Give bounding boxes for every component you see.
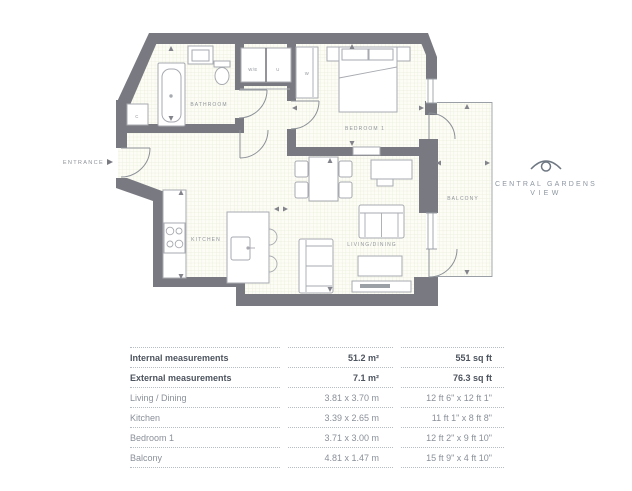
imperial-value: 551 sq ft: [401, 347, 504, 367]
bedroom-label: BEDROOM 1: [345, 126, 385, 132]
entrance-label: ENTRANCE: [63, 160, 104, 166]
bathroom-label: BATHROOM: [190, 102, 227, 108]
eye-icon: [528, 151, 564, 173]
kitchen-island: [227, 212, 277, 283]
living-dining-label: LIVING/DINING: [347, 242, 397, 248]
table-row: Bedroom 1 3.71 x 3.00 m 12 ft 2" x 9 ft …: [130, 427, 504, 447]
row-label: Living / Dining: [130, 387, 280, 407]
radiator: [353, 147, 380, 155]
row-label: Bedroom 1: [130, 427, 280, 447]
table-row: Kitchen 3.39 x 2.65 m 11 ft 1" x 8 ft 8": [130, 407, 504, 427]
metric-value: 51.2 m²: [288, 347, 393, 367]
bedroom-window: [426, 79, 437, 103]
table-row: Balcony 4.81 x 1.47 m 15 ft 9" x 4 ft 10…: [130, 447, 504, 468]
imperial-value: 15 ft 9" x 4 ft 10": [401, 447, 504, 468]
stove: [164, 223, 185, 253]
sofa: [359, 205, 404, 238]
wardrobe-label: W: [305, 71, 310, 76]
metric-value: 3.71 x 3.00 m: [288, 427, 393, 447]
kitchen-label: KITCHEN: [191, 237, 221, 243]
toilet: [214, 61, 230, 85]
row-label: Internal measurements: [130, 347, 280, 367]
closet-u-label: U: [276, 67, 280, 72]
closet-c-label: C: [135, 114, 139, 119]
metric-value: 7.1 m²: [288, 367, 393, 387]
imperial-value: 11 ft 1" x 8 ft 8": [401, 407, 504, 427]
coffee-table: [358, 256, 402, 276]
balcony-floor: [434, 102, 492, 276]
balcony-label: BALCONY: [447, 196, 479, 202]
metric-value: 3.39 x 2.65 m: [288, 407, 393, 427]
table-row: Internal measurements 51.2 m² 551 sq ft: [130, 347, 504, 367]
bathroom-sink: [188, 46, 213, 64]
row-label: External measurements: [130, 367, 280, 387]
row-label: Kitchen: [130, 407, 280, 427]
closet-we-label: W/E: [248, 67, 258, 72]
table-row: External measurements 7.1 m² 76.3 sq ft: [130, 367, 504, 387]
living-window: [426, 213, 437, 249]
metric-value: 3.81 x 3.70 m: [288, 387, 393, 407]
row-label: Balcony: [130, 447, 280, 468]
table-row: Living / Dining 3.81 x 3.70 m 12 ft 6" x…: [130, 387, 504, 407]
imperial-value: 12 ft 2" x 9 ft 10": [401, 427, 504, 447]
logo-name-line2: VIEW: [487, 190, 605, 197]
measurements-table: Internal measurements 51.2 m² 551 sq ft …: [122, 347, 512, 468]
tv-unit: [352, 281, 411, 292]
imperial-value: 76.3 sq ft: [401, 367, 504, 387]
development-logo: CENTRAL GARDENS VIEW: [487, 151, 605, 197]
armchair: [299, 239, 333, 293]
floorplan-page: BATHROOM W/E U W C BEDROOM 1 KITCHEN LIV…: [0, 0, 632, 491]
imperial-value: 12 ft 6" x 12 ft 1": [401, 387, 504, 407]
metric-value: 4.81 x 1.47 m: [288, 447, 393, 468]
logo-name-line1: CENTRAL GARDENS: [487, 181, 605, 188]
entrance-arrow-icon: [107, 159, 113, 165]
